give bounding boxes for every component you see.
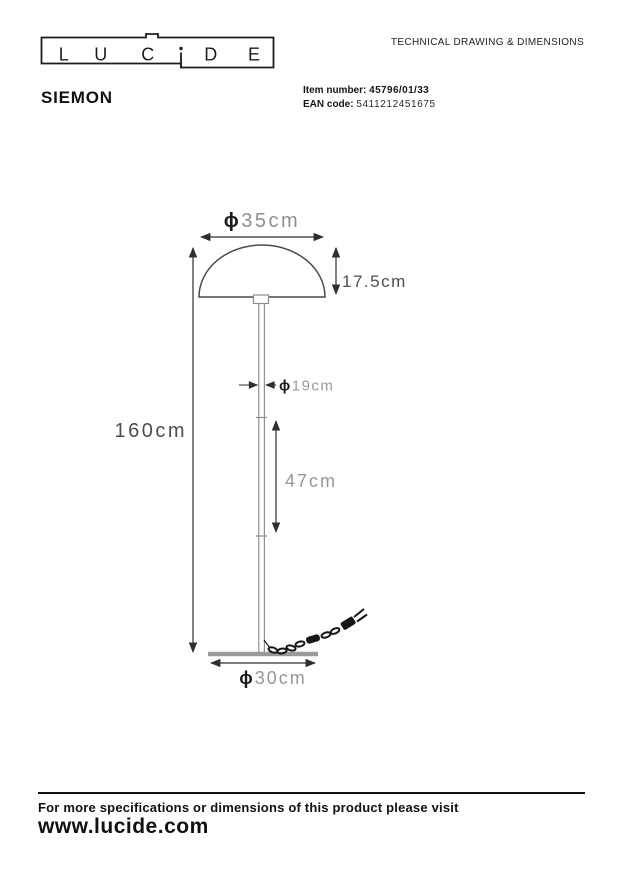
shade-height-label: 17.5cm [342,272,407,291]
power-cord [264,609,367,654]
cord-switch [305,634,320,645]
item-number-row: Item number: 45796/01/33 [303,84,436,98]
lamp-shade-dome [199,245,325,297]
pole-diameter-dimension: ϕ19cm [239,378,334,395]
item-number-label: Item number: [303,85,366,96]
base-diameter-label: ϕ30cm [239,668,307,688]
ean-code-row: EAN code: 5411212451675 [303,98,436,112]
pole-diameter-label: ϕ19cm [279,378,334,395]
footer-website: www.lucide.com [38,815,209,839]
document-title: TECHNICAL DRAWING & DIMENSIONS [391,37,584,48]
item-number-value: 45796/01/33 [369,85,429,96]
ean-code-value: 5411212451675 [356,99,435,110]
footer-divider [38,792,585,794]
product-name: SIEMON [41,88,113,108]
shade-diameter-label: ϕ35cm [224,210,300,232]
lucide-logo-graphic: L U C D E [40,33,275,71]
lamp-dimension-drawing: ϕ35cm 17.5cm 160cm ϕ19cm 47cm [0,190,620,700]
lamp-pole [256,304,267,653]
lucide-logo: L U C D E [40,33,275,71]
pole-section-label: 47cm [285,471,337,491]
technical-drawing-page: L U C D E TECHNICAL DRAWING & DIMENSIONS… [0,0,620,877]
logo-letters: L U C D E [59,45,260,65]
power-plug [340,609,367,631]
total-height-label: 160cm [114,420,187,442]
lamp-neck [254,295,269,304]
footer-note: For more specifications or dimensions of… [38,800,459,815]
product-codes: Item number: 45796/01/33 EAN code: 54112… [303,84,436,112]
ean-code-label: EAN code: [303,99,354,110]
